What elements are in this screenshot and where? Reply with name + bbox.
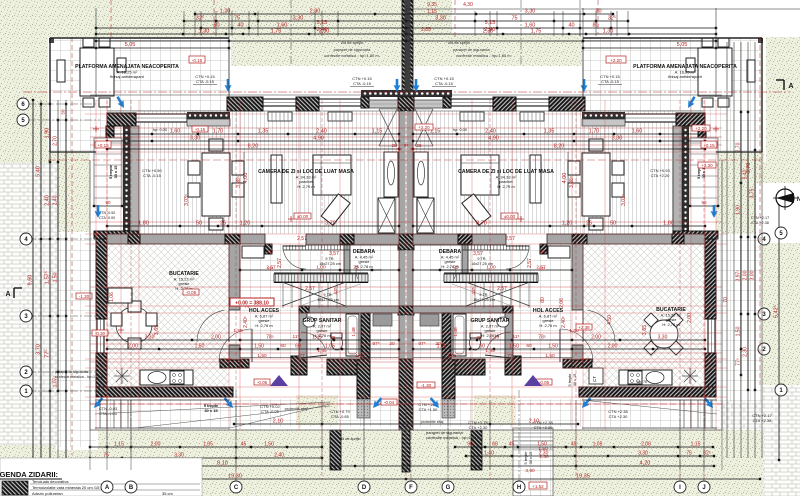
svg-text:H: 2,76 m: H: 2,76 m bbox=[539, 323, 557, 328]
svg-text:2,00: 2,00 bbox=[641, 442, 651, 448]
svg-text:1,50: 1,50 bbox=[736, 326, 742, 336]
svg-text:1,70: 1,70 bbox=[589, 129, 600, 135]
svg-text:CTA -0.15: CTA -0.15 bbox=[143, 173, 161, 178]
svg-text:zid de sprijin: zid de sprijin bbox=[341, 40, 363, 45]
svg-text:H: 2,76 m: H: 2,76 m bbox=[255, 323, 273, 328]
svg-text:J: J bbox=[702, 485, 705, 491]
svg-text:1,50: 1,50 bbox=[254, 344, 264, 350]
svg-text:-0.05: -0.05 bbox=[257, 380, 268, 385]
svg-text:3,30: 3,30 bbox=[293, 16, 304, 22]
svg-text:1,05: 1,05 bbox=[203, 442, 213, 448]
svg-text:A: A bbox=[788, 83, 793, 90]
svg-text:1,75: 1,75 bbox=[271, 29, 282, 35]
svg-text:1,90: 1,90 bbox=[736, 205, 742, 215]
svg-text:2,57: 2,57 bbox=[505, 236, 515, 242]
svg-text:H: 2,79 m: H: 2,79 m bbox=[297, 184, 315, 189]
svg-text:60: 60 bbox=[295, 344, 301, 350]
svg-text:zid de sprijin: zid de sprijin bbox=[448, 40, 470, 45]
svg-text:50: 50 bbox=[61, 109, 66, 115]
svg-text:1,48: 1,48 bbox=[351, 327, 357, 337]
svg-text:9 TR.: 9 TR. bbox=[325, 257, 334, 261]
svg-text:45: 45 bbox=[509, 442, 515, 448]
svg-text:3,30: 3,30 bbox=[190, 136, 201, 142]
svg-text:hp: 75: hp: 75 bbox=[637, 380, 647, 384]
svg-text:2,30: 2,30 bbox=[539, 451, 549, 457]
svg-text:40: 40 bbox=[568, 23, 574, 29]
svg-text:30 x 15: 30 x 15 bbox=[573, 374, 577, 386]
svg-text:4,90: 4,90 bbox=[488, 136, 499, 142]
svg-text:confectie metalica - hp=1,00 m: confectie metalica - hp=1,00 m. bbox=[426, 435, 482, 440]
svg-text:2,00: 2,00 bbox=[151, 442, 161, 448]
svg-text:1,50: 1,50 bbox=[545, 353, 555, 359]
svg-text:1,57⁵: 1,57⁵ bbox=[44, 271, 51, 284]
svg-text:1,15: 1,15 bbox=[691, 442, 701, 448]
svg-text:hp: 0,00: hp: 0,00 bbox=[153, 128, 167, 132]
svg-text:30 x 15: 30 x 15 bbox=[529, 452, 533, 464]
svg-text:9 TR.: 9 TR. bbox=[323, 293, 332, 297]
svg-text:proiectie etaj: proiectie etaj bbox=[421, 419, 444, 424]
svg-text:3,70: 3,70 bbox=[36, 344, 42, 355]
svg-text:1,20: 1,20 bbox=[240, 221, 251, 227]
svg-text:3,00: 3,00 bbox=[750, 270, 756, 280]
svg-text:CTA -0.15: CTA -0.15 bbox=[435, 81, 453, 86]
svg-text:parapet de siguranta: parapet de siguranta bbox=[55, 370, 88, 374]
svg-text:1,80: 1,80 bbox=[663, 221, 674, 227]
svg-text:2,40: 2,40 bbox=[45, 195, 51, 206]
svg-text:2,57: 2,57 bbox=[527, 258, 533, 268]
svg-text:30 x 15: 30 x 15 bbox=[114, 166, 118, 179]
svg-text:4,20: 4,20 bbox=[640, 461, 651, 467]
svg-text:parapet de siguranta: parapet de siguranta bbox=[453, 47, 490, 52]
svg-text:1,05: 1,05 bbox=[355, 353, 365, 359]
svg-text:-1.30: -1.30 bbox=[421, 383, 432, 388]
svg-text:75: 75 bbox=[686, 451, 692, 457]
svg-text:2,40: 2,40 bbox=[274, 453, 284, 459]
svg-text:-0.04: -0.04 bbox=[384, 400, 395, 405]
svg-text:confectie metalica - hp=1,00 m: confectie metalica - hp=1,00 m. bbox=[55, 375, 105, 379]
svg-text:LEGENDA ZIDARII:: LEGENDA ZIDARII: bbox=[0, 470, 58, 479]
svg-text:finisaj antiderapant: finisaj antiderapant bbox=[110, 74, 144, 79]
svg-text:19,35: 19,35 bbox=[576, 474, 590, 480]
svg-text:3,03⁵: 3,03⁵ bbox=[621, 194, 627, 206]
svg-text:+2.20: +2.20 bbox=[695, 126, 707, 131]
svg-text:2,06: 2,06 bbox=[559, 298, 565, 308]
svg-text:-0.05: -0.05 bbox=[186, 290, 197, 295]
svg-text:1,35: 1,35 bbox=[544, 129, 555, 135]
svg-text:9,35: 9,35 bbox=[427, 2, 437, 8]
svg-text:1,20: 1,20 bbox=[562, 221, 573, 227]
svg-text:2,00: 2,00 bbox=[608, 344, 618, 350]
svg-text:80: 80 bbox=[592, 23, 598, 29]
svg-text:CTA +1.50: CTA +1.50 bbox=[419, 407, 438, 412]
svg-text:2,00: 2,00 bbox=[591, 335, 601, 341]
svg-text:H: 2,78 m: H: 2,78 m bbox=[355, 264, 373, 269]
svg-text:2,40: 2,40 bbox=[316, 129, 327, 135]
svg-text:CTA +2.38: CTA +2.38 bbox=[753, 418, 772, 423]
svg-text:80: 80 bbox=[213, 23, 219, 29]
svg-text:1,75: 1,75 bbox=[531, 29, 542, 35]
svg-text:2,57: 2,57 bbox=[297, 236, 307, 242]
svg-text:+0.15: +0.15 bbox=[97, 143, 109, 148]
svg-text:1,40: 1,40 bbox=[484, 451, 494, 457]
svg-text:H: 2,76 m: H: 2,76 m bbox=[481, 333, 499, 338]
svg-text:70: 70 bbox=[723, 297, 729, 303]
svg-text:32⁵: 32⁵ bbox=[703, 451, 711, 457]
svg-text:35 cm: 35 cm bbox=[162, 491, 174, 496]
svg-text:45: 45 bbox=[571, 442, 577, 448]
svg-text:16x27,25 cm: 16x27,25 cm bbox=[473, 298, 495, 302]
svg-text:CTA -0.15: CTA -0.15 bbox=[353, 81, 371, 86]
svg-text:CTA +2.30: CTA +2.30 bbox=[469, 425, 488, 430]
svg-text:+2.38: +2.38 bbox=[578, 325, 590, 330]
svg-text:2,85: 2,85 bbox=[421, 27, 431, 33]
svg-text:90: 90 bbox=[105, 200, 111, 205]
svg-text:16x27,25 cm: 16x27,25 cm bbox=[317, 298, 339, 302]
svg-text:2,30: 2,30 bbox=[743, 347, 749, 357]
svg-text:-0.15: -0.15 bbox=[195, 127, 206, 132]
svg-text:3,30: 3,30 bbox=[612, 136, 623, 142]
svg-text:43⁵: 43⁵ bbox=[333, 287, 339, 294]
svg-text:A: A bbox=[5, 291, 10, 298]
svg-text:G: G bbox=[446, 485, 451, 491]
svg-text:H: 2,79 m: H: 2,79 m bbox=[497, 184, 515, 189]
svg-text:80: 80 bbox=[595, 9, 601, 15]
svg-text:3,30: 3,30 bbox=[638, 451, 648, 457]
svg-text:CT: CT bbox=[592, 376, 597, 382]
svg-text:1,35: 1,35 bbox=[258, 129, 269, 135]
svg-text:-0.15: -0.15 bbox=[192, 58, 203, 63]
svg-text:8,20: 8,20 bbox=[248, 144, 259, 150]
svg-text:8,20: 8,20 bbox=[554, 144, 565, 150]
svg-text:3,30: 3,30 bbox=[658, 335, 668, 341]
svg-text:2,70: 2,70 bbox=[736, 142, 742, 152]
svg-text:±0.00: ±0.00 bbox=[504, 214, 516, 219]
svg-text:3,65: 3,65 bbox=[154, 325, 160, 336]
svg-text:3,98⁵: 3,98⁵ bbox=[236, 176, 242, 188]
svg-text:2,40: 2,40 bbox=[485, 129, 496, 135]
svg-text:CTA -0.15: CTA -0.15 bbox=[601, 79, 619, 84]
svg-text:25: 25 bbox=[586, 221, 592, 227]
svg-text:5,42⁵: 5,42⁵ bbox=[773, 305, 780, 318]
svg-text:2,00: 2,00 bbox=[211, 335, 221, 341]
svg-text:1,15: 1,15 bbox=[427, 9, 437, 15]
svg-text:1,50: 1,50 bbox=[548, 344, 558, 350]
svg-text:F: F bbox=[409, 485, 413, 491]
svg-text:+2.20: +2.20 bbox=[610, 58, 622, 63]
svg-text:1,50: 1,50 bbox=[53, 272, 59, 282]
svg-text:2,57: 2,57 bbox=[277, 258, 283, 268]
svg-text:B: B bbox=[129, 485, 134, 491]
svg-text:+0.00 = 388.10: +0.00 = 388.10 bbox=[235, 301, 269, 307]
svg-text:2,40⁵: 2,40⁵ bbox=[561, 316, 567, 328]
svg-text:77: 77 bbox=[299, 353, 305, 359]
svg-text:75: 75 bbox=[103, 453, 109, 459]
svg-text:25: 25 bbox=[220, 221, 226, 227]
svg-text:1,60: 1,60 bbox=[170, 129, 181, 135]
svg-text:11⁵: 11⁵ bbox=[267, 249, 274, 254]
svg-text:1,05: 1,05 bbox=[447, 353, 457, 359]
svg-text:3,30: 3,30 bbox=[435, 16, 446, 22]
svg-text:3,75: 3,75 bbox=[750, 188, 756, 198]
svg-text:25: 25 bbox=[391, 143, 397, 148]
svg-text:19,30: 19,30 bbox=[228, 474, 242, 480]
svg-text:zid de sprijin: zid de sprijin bbox=[339, 437, 360, 441]
svg-text:40: 40 bbox=[237, 23, 243, 29]
svg-text:11⁵: 11⁵ bbox=[539, 249, 546, 254]
svg-text:hp: 0,00: hp: 0,00 bbox=[453, 128, 467, 132]
svg-text:1,50: 1,50 bbox=[195, 344, 205, 350]
svg-text:4,50: 4,50 bbox=[607, 315, 613, 325]
svg-text:50: 50 bbox=[610, 221, 616, 227]
svg-text:16x27,25 cm: 16x27,25 cm bbox=[319, 262, 341, 266]
svg-text:5 trepte: 5 trepte bbox=[568, 374, 572, 387]
svg-text:CTA -0.15: CTA -0.15 bbox=[196, 79, 214, 84]
svg-text:H: 2,78 m: H: 2,78 m bbox=[441, 264, 459, 269]
svg-text:11⁵: 11⁵ bbox=[293, 334, 300, 340]
svg-text:3,70: 3,70 bbox=[325, 221, 336, 227]
svg-text:2,40⁵: 2,40⁵ bbox=[243, 316, 249, 328]
svg-text:-0.30: -0.30 bbox=[95, 331, 106, 336]
svg-text:1,50: 1,50 bbox=[537, 442, 547, 448]
svg-text:CTA +2.30: CTA +2.30 bbox=[609, 414, 628, 419]
svg-text:parapet de siguranta: parapet de siguranta bbox=[334, 47, 371, 52]
svg-text:3,70: 3,70 bbox=[476, 221, 487, 227]
svg-text:A: A bbox=[105, 485, 110, 491]
svg-text:3,03⁵: 3,03⁵ bbox=[184, 194, 190, 206]
svg-text:Tenciuala decorativa: Tenciuala decorativa bbox=[32, 479, 69, 484]
svg-text:75: 75 bbox=[511, 16, 517, 22]
svg-text:±0.00: ±0.00 bbox=[297, 214, 309, 219]
svg-text:77⁵: 77⁵ bbox=[736, 358, 742, 366]
svg-text:3,30: 3,30 bbox=[525, 9, 536, 15]
svg-text:3,65: 3,65 bbox=[642, 325, 648, 336]
svg-text:+1.52: +1.52 bbox=[532, 484, 544, 489]
svg-text:45: 45 bbox=[241, 442, 247, 448]
svg-text:11⁵: 11⁵ bbox=[539, 266, 546, 271]
svg-text:3,70: 3,70 bbox=[746, 163, 752, 174]
svg-text:32⁵: 32⁵ bbox=[608, 15, 616, 22]
svg-text:9,60: 9,60 bbox=[28, 275, 34, 286]
svg-text:32⁵: 32⁵ bbox=[196, 15, 204, 22]
svg-text:3,90: 3,90 bbox=[525, 468, 535, 474]
svg-text:11⁵: 11⁵ bbox=[267, 266, 274, 271]
svg-text:8,10: 8,10 bbox=[217, 461, 228, 467]
svg-text:60: 60 bbox=[479, 344, 485, 350]
svg-text:D: D bbox=[362, 485, 367, 491]
svg-text:1,06: 1,06 bbox=[109, 292, 115, 302]
svg-text:5,40: 5,40 bbox=[36, 166, 42, 177]
svg-text:60: 60 bbox=[492, 442, 498, 448]
svg-text:2,00: 2,00 bbox=[743, 270, 749, 280]
svg-text:1,50: 1,50 bbox=[264, 442, 274, 448]
svg-text:77⁵: 77⁵ bbox=[44, 349, 51, 357]
svg-text:35: 35 bbox=[330, 335, 336, 341]
svg-text:CTA +2.20: CTA +2.20 bbox=[651, 173, 670, 178]
svg-text:1,50: 1,50 bbox=[509, 344, 519, 350]
svg-text:5 trepte: 5 trepte bbox=[109, 165, 113, 179]
svg-text:78⁵: 78⁵ bbox=[538, 335, 546, 341]
svg-text:1,15: 1,15 bbox=[114, 442, 124, 448]
svg-text:25: 25 bbox=[416, 143, 422, 148]
svg-text:50: 50 bbox=[196, 221, 202, 227]
svg-text:1,05: 1,05 bbox=[593, 442, 603, 448]
svg-text:confectie metalica - hp=1,80 m: confectie metalica - hp=1,80 m. bbox=[456, 53, 512, 58]
svg-text:2,00: 2,00 bbox=[128, 344, 138, 350]
svg-text:1,15: 1,15 bbox=[372, 129, 383, 135]
svg-text:1,60: 1,60 bbox=[632, 129, 643, 135]
svg-text:90: 90 bbox=[701, 200, 707, 205]
svg-text:16x27,25 cm: 16x27,25 cm bbox=[471, 262, 493, 266]
svg-text:9 TR.: 9 TR. bbox=[479, 293, 488, 297]
svg-text:Termoizolatie vata minerala 20: Termoizolatie vata minerala 20 cm /15 cm bbox=[32, 485, 106, 490]
svg-text:75: 75 bbox=[234, 16, 240, 22]
svg-text:1,30: 1,30 bbox=[199, 29, 210, 35]
svg-text:+2.20: +2.20 bbox=[418, 125, 430, 130]
svg-text:3,97⁵: 3,97⁵ bbox=[736, 270, 742, 282]
svg-text:4,30: 4,30 bbox=[463, 2, 473, 8]
svg-text:4,90: 4,90 bbox=[313, 136, 324, 142]
svg-text:80: 80 bbox=[540, 297, 546, 303]
svg-text:confectie metalica - hp=1,80 m: confectie metalica - hp=1,80 m. bbox=[324, 53, 380, 58]
svg-text:1,70: 1,70 bbox=[213, 129, 224, 135]
svg-text:5,05: 5,05 bbox=[125, 42, 136, 48]
svg-text:finisaj antiderapant: finisaj antiderapant bbox=[668, 74, 702, 79]
svg-text:-1.30: -1.30 bbox=[79, 294, 90, 299]
svg-text:90: 90 bbox=[467, 442, 473, 448]
svg-text:78⁵: 78⁵ bbox=[266, 335, 274, 341]
svg-text:11⁵: 11⁵ bbox=[513, 334, 520, 340]
svg-text:1,50: 1,50 bbox=[257, 353, 267, 359]
svg-text:2,40: 2,40 bbox=[53, 195, 59, 205]
svg-text:5 trepte: 5 trepte bbox=[524, 452, 528, 465]
svg-text:1,48: 1,48 bbox=[453, 327, 459, 337]
svg-text:9 TR.: 9 TR. bbox=[477, 257, 486, 261]
svg-text:Adeziv poliuretan: Adeziv poliuretan bbox=[32, 491, 63, 496]
svg-text:2,70: 2,70 bbox=[53, 136, 59, 146]
svg-text:C: C bbox=[234, 485, 239, 491]
svg-text:5,05: 5,05 bbox=[677, 42, 688, 48]
svg-text:3,30: 3,30 bbox=[174, 453, 184, 459]
svg-text:30 x 15: 30 x 15 bbox=[204, 408, 218, 413]
svg-text:CTA -0.85: CTA -0.85 bbox=[331, 414, 349, 419]
svg-text:H: 2,76 m: H: 2,76 m bbox=[313, 333, 331, 338]
svg-text:H: 2,78 m: H: 2,78 m bbox=[662, 322, 680, 327]
svg-text:CTA +2.30: CTA +2.30 bbox=[534, 425, 553, 430]
svg-text:5⁵: 5⁵ bbox=[404, 143, 409, 148]
svg-text:H: H bbox=[517, 485, 521, 491]
svg-text:2,00: 2,00 bbox=[687, 313, 693, 323]
svg-text:4,00: 4,00 bbox=[562, 173, 568, 184]
svg-text:+2.30: +2.30 bbox=[701, 163, 713, 168]
svg-text:2,10: 2,10 bbox=[273, 419, 284, 425]
svg-text:1,30: 1,30 bbox=[603, 29, 614, 35]
svg-text:1,80: 1,80 bbox=[138, 221, 149, 227]
